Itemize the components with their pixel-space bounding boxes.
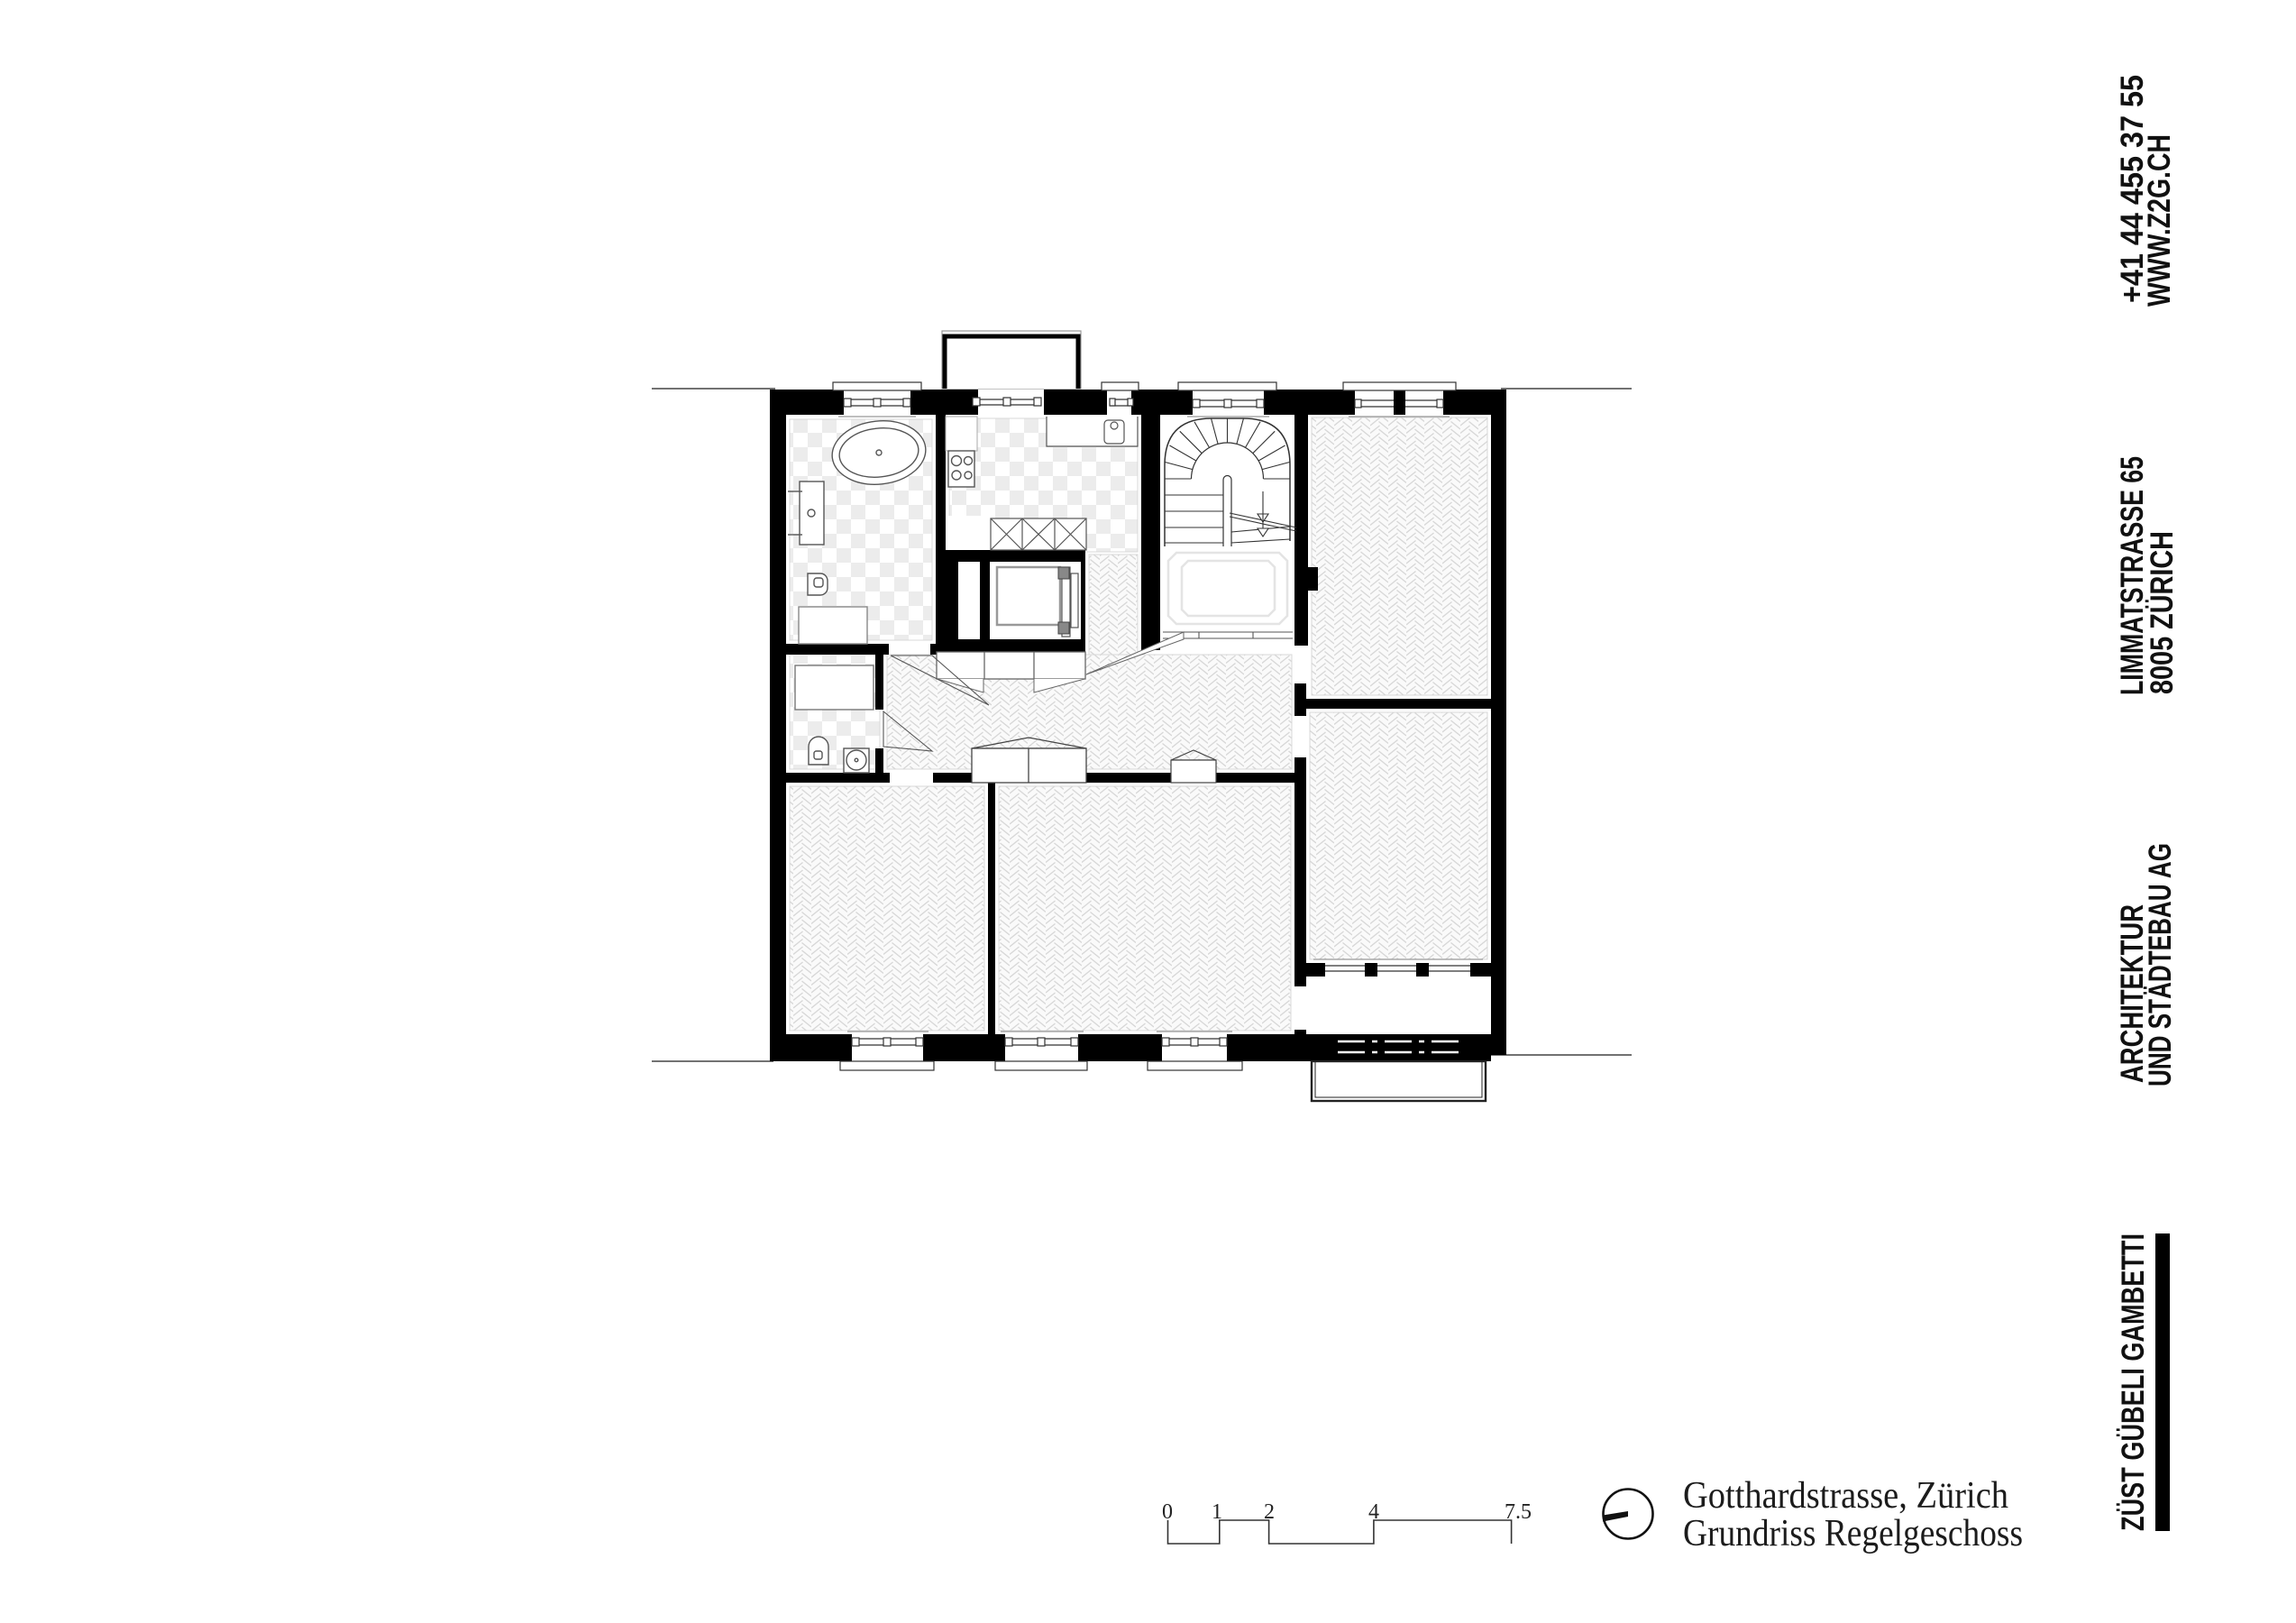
svg-text:Gotthardstrasse, Zürich: Gotthardstrasse, Zürich [1683,1475,2008,1517]
svg-text:UND STÄDTEBAU AG: UND STÄDTEBAU AG [2143,843,2178,1087]
svg-text:2: 2 [1264,1500,1275,1524]
svg-text:0: 0 [1162,1500,1173,1524]
svg-text:1: 1 [1212,1500,1222,1524]
svg-text:Grundriss Regelgeschoss: Grundriss Regelgeschoss [1683,1513,2023,1554]
svg-text:8005 ZÜRICH: 8005 ZÜRICH [2145,531,2180,694]
svg-text:WWW.Z2G.CH: WWW.Z2G.CH [2142,134,2177,307]
svg-text:4: 4 [1368,1500,1379,1524]
svg-text:7.5: 7.5 [1505,1500,1532,1524]
svg-text:ZÜST GÜBELI GAMBETTI: ZÜST GÜBELI GAMBETTI [2116,1233,2151,1531]
